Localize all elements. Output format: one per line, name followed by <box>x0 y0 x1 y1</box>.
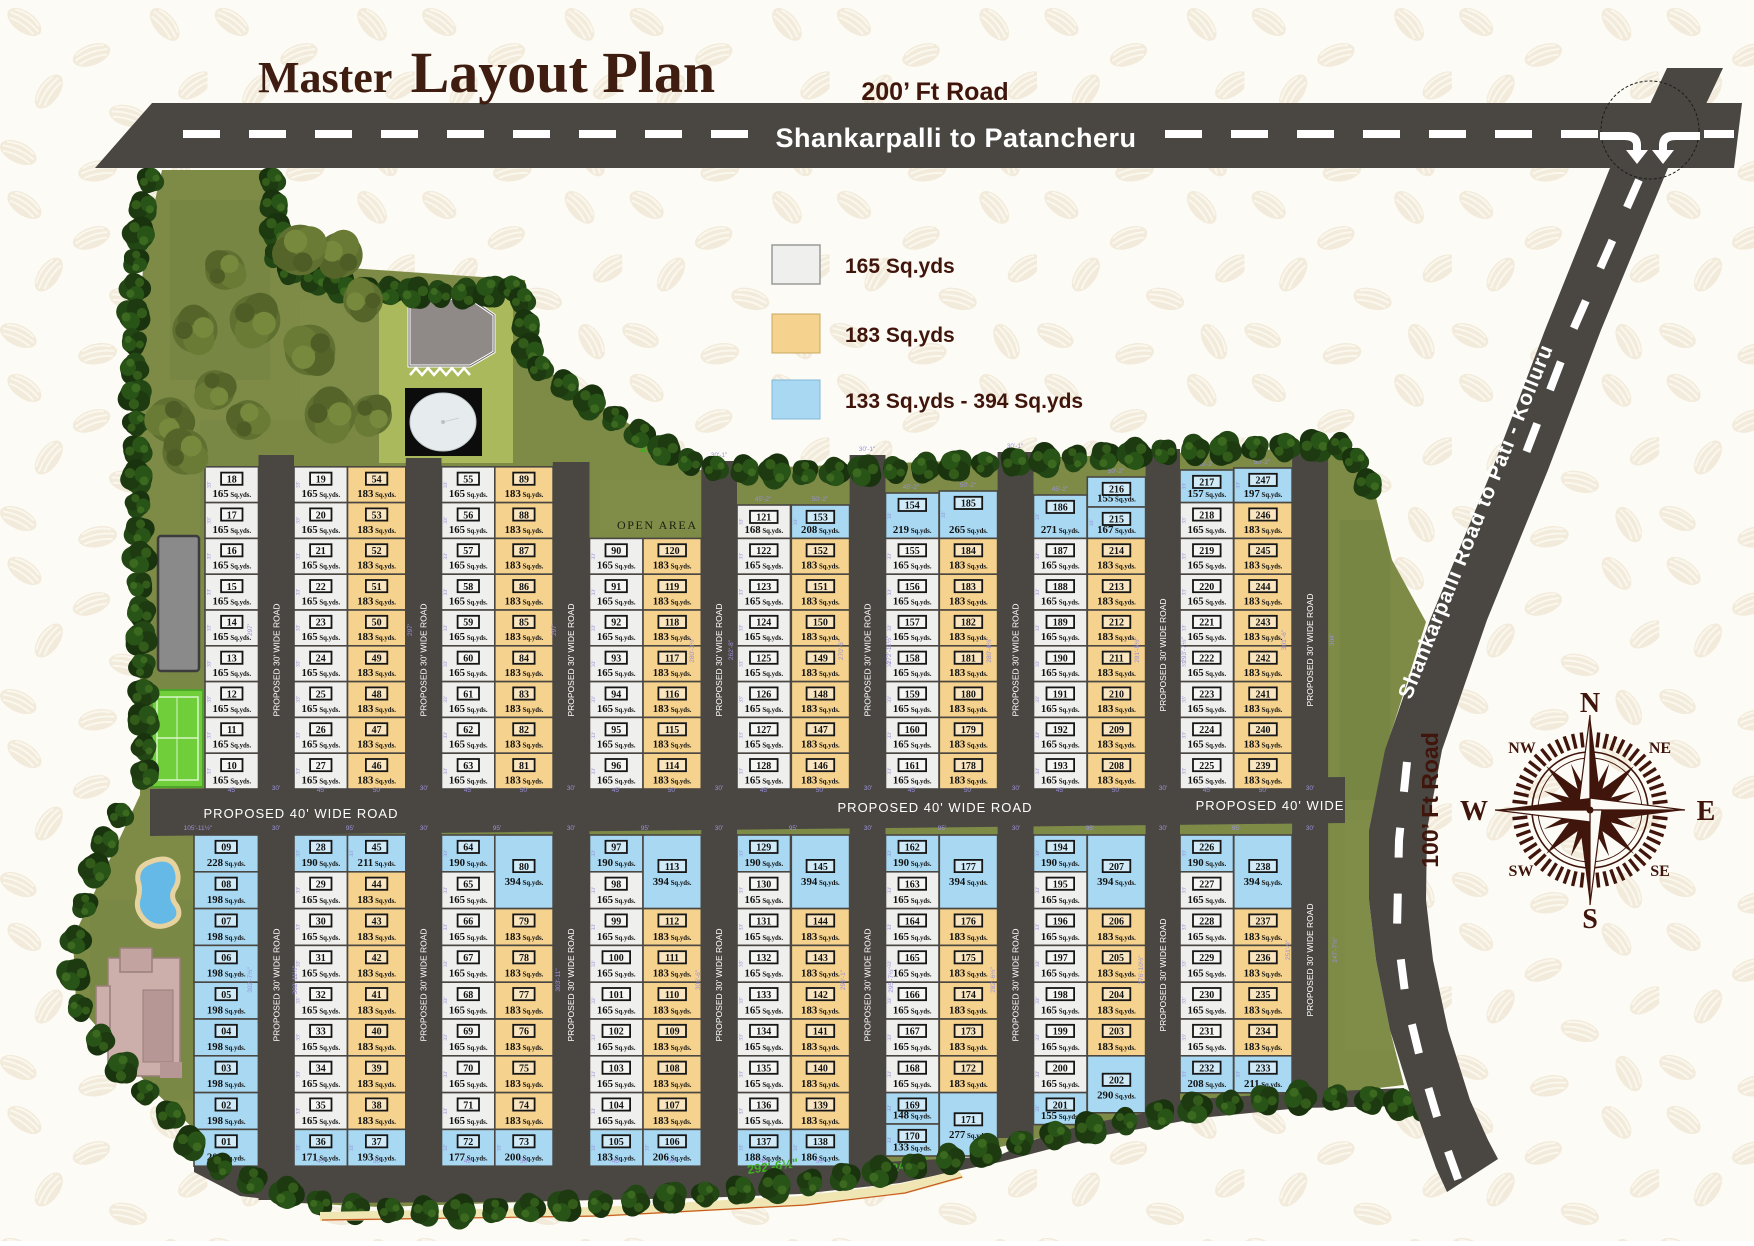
svg-text:94: 94 <box>611 689 621 700</box>
svg-text:213: 213 <box>1109 582 1124 593</box>
svg-text:33': 33' <box>296 1034 302 1041</box>
svg-text:30': 30' <box>420 825 428 832</box>
svg-text:45': 45' <box>464 1158 472 1165</box>
svg-text:50': 50' <box>1259 787 1267 794</box>
svg-text:125: 125 <box>756 654 771 665</box>
svg-text:45': 45' <box>908 787 916 794</box>
svg-text:92: 92 <box>611 618 621 629</box>
svg-text:63: 63 <box>463 761 473 772</box>
svg-text:33': 33' <box>296 517 302 524</box>
svg-text:33': 33' <box>443 1034 449 1041</box>
svg-text:33': 33' <box>443 553 449 560</box>
svg-text:46: 46 <box>372 761 382 772</box>
svg-text:95': 95' <box>1232 825 1240 832</box>
svg-text:205: 205 <box>1109 953 1124 964</box>
svg-text:PROPOSED 30' WIDE ROAD: PROPOSED 30' WIDE ROAD <box>1011 928 1021 1041</box>
svg-text:247'-7½": 247'-7½" <box>1331 937 1339 963</box>
svg-text:115: 115 <box>665 725 679 736</box>
svg-text:168: 168 <box>905 1064 920 1075</box>
svg-text:127: 127 <box>756 725 771 736</box>
svg-text:SE: SE <box>1650 863 1670 880</box>
svg-text:33': 33' <box>207 660 213 667</box>
svg-text:177: 177 <box>961 862 976 873</box>
svg-text:297': 297' <box>551 624 558 636</box>
svg-text:18: 18 <box>227 475 237 486</box>
svg-text:31: 31 <box>316 953 326 964</box>
svg-text:17: 17 <box>227 510 237 521</box>
svg-text:33': 33' <box>1035 589 1041 596</box>
svg-text:174: 174 <box>961 990 976 1001</box>
svg-text:16: 16 <box>227 546 237 557</box>
svg-text:50'-2": 50'-2" <box>1108 468 1125 475</box>
svg-text:95': 95' <box>641 825 649 832</box>
svg-text:226: 226 <box>1199 843 1214 854</box>
svg-text:33': 33' <box>739 1071 745 1078</box>
svg-text:NW: NW <box>1508 740 1536 757</box>
svg-text:99: 99 <box>611 916 621 927</box>
svg-text:62: 62 <box>463 725 473 736</box>
svg-text:280'-8½": 280'-8½" <box>985 637 993 663</box>
svg-text:29: 29 <box>316 880 326 891</box>
svg-text:23: 23 <box>316 618 326 629</box>
svg-text:33': 33' <box>443 887 449 894</box>
svg-text:03: 03 <box>221 1064 231 1075</box>
svg-text:33': 33' <box>887 997 893 1004</box>
svg-text:238: 238 <box>1256 862 1271 873</box>
svg-text:130: 130 <box>756 880 771 891</box>
svg-text:221: 221 <box>1199 618 1214 629</box>
svg-text:81: 81 <box>519 761 529 772</box>
svg-text:160: 160 <box>905 725 920 736</box>
svg-text:25: 25 <box>316 689 326 700</box>
svg-text:149: 149 <box>813 654 828 665</box>
svg-text:95': 95' <box>1086 825 1094 832</box>
svg-text:33': 33' <box>591 768 597 775</box>
svg-text:33': 33' <box>296 732 302 739</box>
svg-text:33': 33' <box>349 850 355 857</box>
svg-text:33': 33' <box>591 660 597 667</box>
svg-text:232: 232 <box>1199 1064 1214 1075</box>
svg-text:30': 30' <box>272 825 280 832</box>
svg-text:141: 141 <box>813 1027 828 1038</box>
svg-text:45'-2": 45'-2" <box>755 496 772 503</box>
svg-text:33': 33' <box>443 768 449 775</box>
svg-text:73: 73 <box>519 1137 529 1148</box>
svg-text:59: 59 <box>463 618 473 629</box>
svg-text:33': 33' <box>887 924 893 931</box>
svg-text:77: 77 <box>519 990 529 1001</box>
svg-text:33': 33' <box>1035 513 1041 520</box>
svg-text:22: 22 <box>316 582 326 593</box>
svg-text:33': 33' <box>1182 553 1188 560</box>
svg-text:87: 87 <box>519 546 529 557</box>
svg-text:200: 200 <box>1053 1064 1068 1075</box>
svg-text:33': 33' <box>296 1108 302 1115</box>
svg-text:33': 33' <box>941 511 947 518</box>
svg-text:33': 33' <box>207 589 213 596</box>
svg-text:78: 78 <box>519 953 529 964</box>
svg-text:164: 164 <box>905 916 920 927</box>
svg-text:33': 33' <box>443 625 449 632</box>
svg-text:199: 199 <box>1053 1027 1068 1038</box>
svg-text:193: 193 <box>1053 761 1068 772</box>
svg-text:33': 33' <box>887 553 893 560</box>
svg-text:66: 66 <box>463 916 473 927</box>
svg-text:135: 135 <box>756 1064 771 1075</box>
svg-text:33': 33' <box>207 696 213 703</box>
svg-text:33': 33' <box>207 732 213 739</box>
svg-text:45': 45' <box>228 787 236 794</box>
svg-text:30'-1": 30'-1" <box>859 446 876 453</box>
svg-text:306'-6": 306'-6" <box>695 969 702 990</box>
svg-text:72: 72 <box>463 1137 473 1148</box>
svg-text:103: 103 <box>609 1064 624 1075</box>
svg-text:33': 33' <box>739 1034 745 1041</box>
svg-text:33': 33' <box>887 850 893 857</box>
svg-text:45': 45' <box>760 787 768 794</box>
svg-text:188: 188 <box>1053 582 1068 593</box>
svg-text:111: 111 <box>665 953 679 964</box>
svg-text:33': 33' <box>296 696 302 703</box>
svg-text:33': 33' <box>296 1071 302 1078</box>
svg-text:33': 33' <box>645 1145 651 1152</box>
svg-text:33': 33' <box>591 553 597 560</box>
svg-text:45': 45' <box>317 1158 325 1165</box>
svg-text:33': 33' <box>296 768 302 775</box>
svg-text:132: 132 <box>756 953 771 964</box>
svg-text:33': 33' <box>1035 553 1041 560</box>
svg-text:100’ Ft Road: 100’ Ft Road <box>1417 732 1443 867</box>
svg-text:33': 33' <box>1182 887 1188 894</box>
svg-text:07: 07 <box>221 916 231 927</box>
svg-text:33': 33' <box>1035 768 1041 775</box>
svg-text:140: 140 <box>813 1064 828 1075</box>
svg-text:30': 30' <box>1159 825 1167 832</box>
svg-text:PROPOSED 40' WIDE: PROPOSED 40' WIDE <box>1196 798 1345 813</box>
svg-text:33': 33' <box>591 924 597 931</box>
svg-text:272'-11½": 272'-11½" <box>885 635 893 664</box>
svg-text:173: 173 <box>961 1027 976 1038</box>
svg-text:24: 24 <box>316 654 326 665</box>
svg-text:219: 219 <box>1199 546 1214 557</box>
svg-text:48: 48 <box>372 689 382 700</box>
svg-text:120: 120 <box>665 546 680 557</box>
svg-text:101: 101 <box>609 990 624 1001</box>
svg-text:15: 15 <box>227 582 237 593</box>
svg-text:276'-10½": 276'-10½" <box>1137 955 1145 985</box>
svg-text:299'-1": 299'-1" <box>840 969 847 990</box>
svg-text:PROPOSED 30' WIDE ROAD: PROPOSED 30' WIDE ROAD <box>419 928 429 1041</box>
svg-text:43: 43 <box>372 916 382 927</box>
svg-text:102: 102 <box>609 1027 624 1038</box>
svg-text:303'-11": 303'-11" <box>555 968 562 992</box>
svg-text:133 Sq.yds - 394 Sq.yds: 133 Sq.yds - 394 Sq.yds <box>845 390 1083 413</box>
svg-text:33': 33' <box>443 732 449 739</box>
svg-text:33': 33' <box>887 1137 893 1144</box>
svg-text:33': 33' <box>207 517 213 524</box>
svg-text:26: 26 <box>316 725 326 736</box>
svg-text:234: 234 <box>1256 1027 1271 1038</box>
svg-text:204: 204 <box>1109 990 1124 1001</box>
svg-text:38: 38 <box>372 1100 382 1111</box>
svg-text:33': 33' <box>1035 625 1041 632</box>
svg-text:185: 185 <box>961 499 976 510</box>
svg-text:PROPOSED 40' WIDE ROAD: PROPOSED 40' WIDE ROAD <box>204 806 399 821</box>
svg-text:33': 33' <box>296 924 302 931</box>
svg-text:208: 208 <box>1109 761 1124 772</box>
svg-text:33': 33' <box>443 660 449 667</box>
svg-text:212: 212 <box>1109 618 1124 629</box>
svg-text:93: 93 <box>611 654 621 665</box>
svg-text:97: 97 <box>611 843 621 854</box>
svg-text:33': 33' <box>443 481 449 488</box>
svg-text:225: 225 <box>1199 761 1214 772</box>
svg-text:33: 33 <box>316 1027 326 1038</box>
svg-text:172: 172 <box>961 1064 976 1075</box>
svg-text:30': 30' <box>567 785 575 792</box>
svg-text:33': 33' <box>443 961 449 968</box>
svg-text:33': 33' <box>1035 1105 1041 1112</box>
svg-text:138: 138 <box>813 1137 828 1148</box>
svg-text:166: 166 <box>905 990 920 1001</box>
svg-text:291'-5½": 291'-5½" <box>1133 637 1141 663</box>
svg-text:57: 57 <box>463 546 473 557</box>
svg-text:33': 33' <box>591 1108 597 1115</box>
svg-text:32: 32 <box>316 990 326 1001</box>
svg-text:128: 128 <box>756 761 771 772</box>
svg-text:33': 33' <box>1035 696 1041 703</box>
svg-text:167: 167 <box>905 1027 920 1038</box>
svg-text:106: 106 <box>665 1137 680 1148</box>
svg-text:33': 33' <box>1182 517 1188 524</box>
svg-text:214: 214 <box>1109 546 1124 557</box>
svg-text:203: 203 <box>1109 1027 1124 1038</box>
svg-text:33': 33' <box>739 732 745 739</box>
svg-text:30': 30' <box>1012 785 1020 792</box>
svg-text:50': 50' <box>1112 787 1120 794</box>
svg-text:PROPOSED 30' WIDE ROAD: PROPOSED 30' WIDE ROAD <box>1305 593 1315 706</box>
svg-text:192: 192 <box>1053 725 1068 736</box>
svg-text:33': 33' <box>887 732 893 739</box>
svg-text:33': 33' <box>887 1034 893 1041</box>
svg-text:52: 52 <box>372 546 382 557</box>
svg-text:33': 33' <box>887 1071 893 1078</box>
svg-text:100: 100 <box>609 953 624 964</box>
svg-text:195: 195 <box>1053 880 1068 891</box>
svg-text:33': 33' <box>739 518 745 525</box>
svg-text:33': 33' <box>739 553 745 560</box>
svg-text:235: 235 <box>1256 990 1271 1001</box>
svg-text:30': 30' <box>864 825 872 832</box>
svg-text:02: 02 <box>221 1100 231 1111</box>
svg-text:13: 13 <box>227 654 237 665</box>
svg-text:PROPOSED 30' WIDE ROAD: PROPOSED 30' WIDE ROAD <box>863 928 873 1041</box>
svg-text:33': 33' <box>1182 924 1188 931</box>
svg-text:159: 159 <box>905 689 920 700</box>
svg-text:33': 33' <box>443 1108 449 1115</box>
svg-text:262'-8": 262'-8" <box>728 639 735 660</box>
svg-text:PROPOSED 30' WIDE ROAD: PROPOSED 30' WIDE ROAD <box>566 928 576 1041</box>
svg-text:222: 222 <box>1199 654 1214 665</box>
svg-text:33': 33' <box>591 1071 597 1078</box>
svg-text:129: 129 <box>756 843 771 854</box>
svg-text:50'-2": 50'-2" <box>812 496 829 503</box>
svg-text:33': 33' <box>443 1145 449 1152</box>
svg-text:245: 245 <box>1256 546 1271 557</box>
svg-text:33': 33' <box>793 518 799 525</box>
svg-text:180: 180 <box>961 689 976 700</box>
svg-text:33': 33' <box>1035 887 1041 894</box>
svg-text:33': 33' <box>739 887 745 894</box>
svg-text:118: 118 <box>665 618 679 629</box>
svg-text:70: 70 <box>463 1064 473 1075</box>
svg-text:33': 33' <box>1182 483 1188 490</box>
svg-text:20: 20 <box>316 510 326 521</box>
svg-text:50': 50' <box>668 1158 676 1165</box>
svg-text:83: 83 <box>519 689 529 700</box>
svg-text:30': 30' <box>1306 785 1314 792</box>
svg-text:90: 90 <box>611 546 621 557</box>
svg-text:45': 45' <box>612 787 620 794</box>
svg-text:53: 53 <box>372 510 382 521</box>
svg-text:33': 33' <box>1182 625 1188 632</box>
svg-text:33': 33' <box>591 589 597 596</box>
svg-text:280'-3½": 280'-3½" <box>688 637 696 663</box>
svg-text:33': 33' <box>1035 732 1041 739</box>
svg-text:27: 27 <box>316 761 326 772</box>
svg-text:56: 56 <box>463 510 473 521</box>
svg-text:179: 179 <box>961 725 976 736</box>
svg-text:228: 228 <box>1199 916 1214 927</box>
svg-text:33': 33' <box>1182 1034 1188 1041</box>
svg-text:33': 33' <box>591 696 597 703</box>
svg-text:39: 39 <box>372 1064 382 1075</box>
svg-text:33': 33' <box>443 696 449 703</box>
svg-text:119: 119 <box>665 582 679 593</box>
svg-text:33': 33' <box>207 625 213 632</box>
svg-text:171: 171 <box>961 1115 976 1126</box>
svg-text:49: 49 <box>372 654 382 665</box>
svg-text:Shankarpalli to Patancheru: Shankarpalli to Patancheru <box>775 123 1136 153</box>
svg-text:88: 88 <box>519 510 529 521</box>
svg-text:230: 230 <box>1199 990 1214 1001</box>
svg-text:45'-2": 45'-2" <box>1052 486 1069 493</box>
svg-text:36: 36 <box>316 1137 326 1148</box>
svg-text:122: 122 <box>756 546 771 557</box>
svg-text:33': 33' <box>739 589 745 596</box>
svg-text:147: 147 <box>813 725 828 736</box>
svg-text:33': 33' <box>887 625 893 632</box>
svg-text:220: 220 <box>1199 582 1214 593</box>
svg-text:189: 189 <box>1053 618 1068 629</box>
svg-text:54: 54 <box>372 475 382 486</box>
svg-text:69: 69 <box>463 1027 473 1038</box>
svg-text:33': 33' <box>739 1145 745 1152</box>
svg-text:80: 80 <box>519 862 529 873</box>
svg-text:14: 14 <box>227 618 237 629</box>
svg-text:242: 242 <box>1256 654 1271 665</box>
svg-text:84: 84 <box>519 654 529 665</box>
svg-text:190: 190 <box>1053 654 1068 665</box>
svg-text:157: 157 <box>905 618 920 629</box>
svg-text:247: 247 <box>1256 476 1271 487</box>
svg-text:35: 35 <box>316 1100 326 1111</box>
svg-text:64: 64 <box>463 843 473 854</box>
svg-text:33': 33' <box>739 768 745 775</box>
svg-text:33': 33' <box>591 1034 597 1041</box>
svg-text:33': 33' <box>591 1145 597 1152</box>
svg-text:33': 33' <box>1235 482 1241 489</box>
svg-text:33': 33' <box>443 589 449 596</box>
svg-text:33': 33' <box>591 997 597 1004</box>
svg-text:241: 241 <box>1256 689 1271 700</box>
svg-text:270'-6": 270'-6" <box>838 639 845 660</box>
svg-text:33': 33' <box>887 696 893 703</box>
svg-text:33': 33' <box>1035 1034 1041 1041</box>
svg-text:33': 33' <box>887 961 893 968</box>
svg-text:67: 67 <box>463 953 473 964</box>
svg-text:107: 107 <box>665 1100 680 1111</box>
svg-text:N: N <box>1580 688 1600 719</box>
svg-text:105: 105 <box>609 1137 624 1148</box>
svg-text:33': 33' <box>739 660 745 667</box>
svg-text:50: 50 <box>372 618 382 629</box>
svg-text:33': 33' <box>887 589 893 596</box>
svg-text:33': 33' <box>296 589 302 596</box>
svg-text:302'-7½": 302'-7½" <box>246 967 254 993</box>
svg-text:227: 227 <box>1199 880 1214 891</box>
svg-text:10: 10 <box>227 761 237 772</box>
svg-text:143: 143 <box>813 953 828 964</box>
svg-text:161: 161 <box>905 761 920 772</box>
svg-text:146: 146 <box>813 761 828 772</box>
svg-text:33': 33' <box>591 961 597 968</box>
svg-text:144: 144 <box>813 916 828 927</box>
svg-text:165 Sq.yds: 165 Sq.yds <box>845 255 955 278</box>
svg-text:33': 33' <box>296 625 302 632</box>
svg-text:01: 01 <box>221 1137 231 1148</box>
svg-text:183 Sq.yds: 183 Sq.yds <box>845 324 955 347</box>
svg-text:33': 33' <box>1035 961 1041 968</box>
svg-text:91: 91 <box>611 582 621 593</box>
svg-text:237: 237 <box>1256 916 1271 927</box>
svg-text:191: 191 <box>1053 689 1068 700</box>
svg-text:33': 33' <box>887 512 893 519</box>
svg-text:76: 76 <box>519 1027 529 1038</box>
svg-text:19: 19 <box>316 475 326 486</box>
svg-text:45': 45' <box>464 787 472 794</box>
svg-text:11: 11 <box>227 725 236 736</box>
svg-text:136: 136 <box>756 1100 771 1111</box>
svg-text:145: 145 <box>813 862 828 873</box>
svg-text:33': 33' <box>349 1145 355 1152</box>
svg-text:60: 60 <box>463 654 473 665</box>
svg-text:33': 33' <box>1182 696 1188 703</box>
svg-text:33': 33' <box>793 1145 799 1152</box>
svg-text:229: 229 <box>1199 953 1214 964</box>
svg-text:50': 50' <box>816 1158 824 1165</box>
svg-text:30: 30 <box>316 916 326 927</box>
svg-text:112: 112 <box>665 916 679 927</box>
svg-text:155: 155 <box>905 546 920 557</box>
svg-text:158: 158 <box>905 654 920 665</box>
svg-text:33': 33' <box>207 553 213 560</box>
svg-text:OPEN AREA: OPEN AREA <box>617 518 697 532</box>
svg-text:33': 33' <box>296 481 302 488</box>
svg-text:33': 33' <box>1035 850 1041 857</box>
svg-text:E: E <box>1697 796 1716 827</box>
svg-text:34: 34 <box>316 1064 326 1075</box>
